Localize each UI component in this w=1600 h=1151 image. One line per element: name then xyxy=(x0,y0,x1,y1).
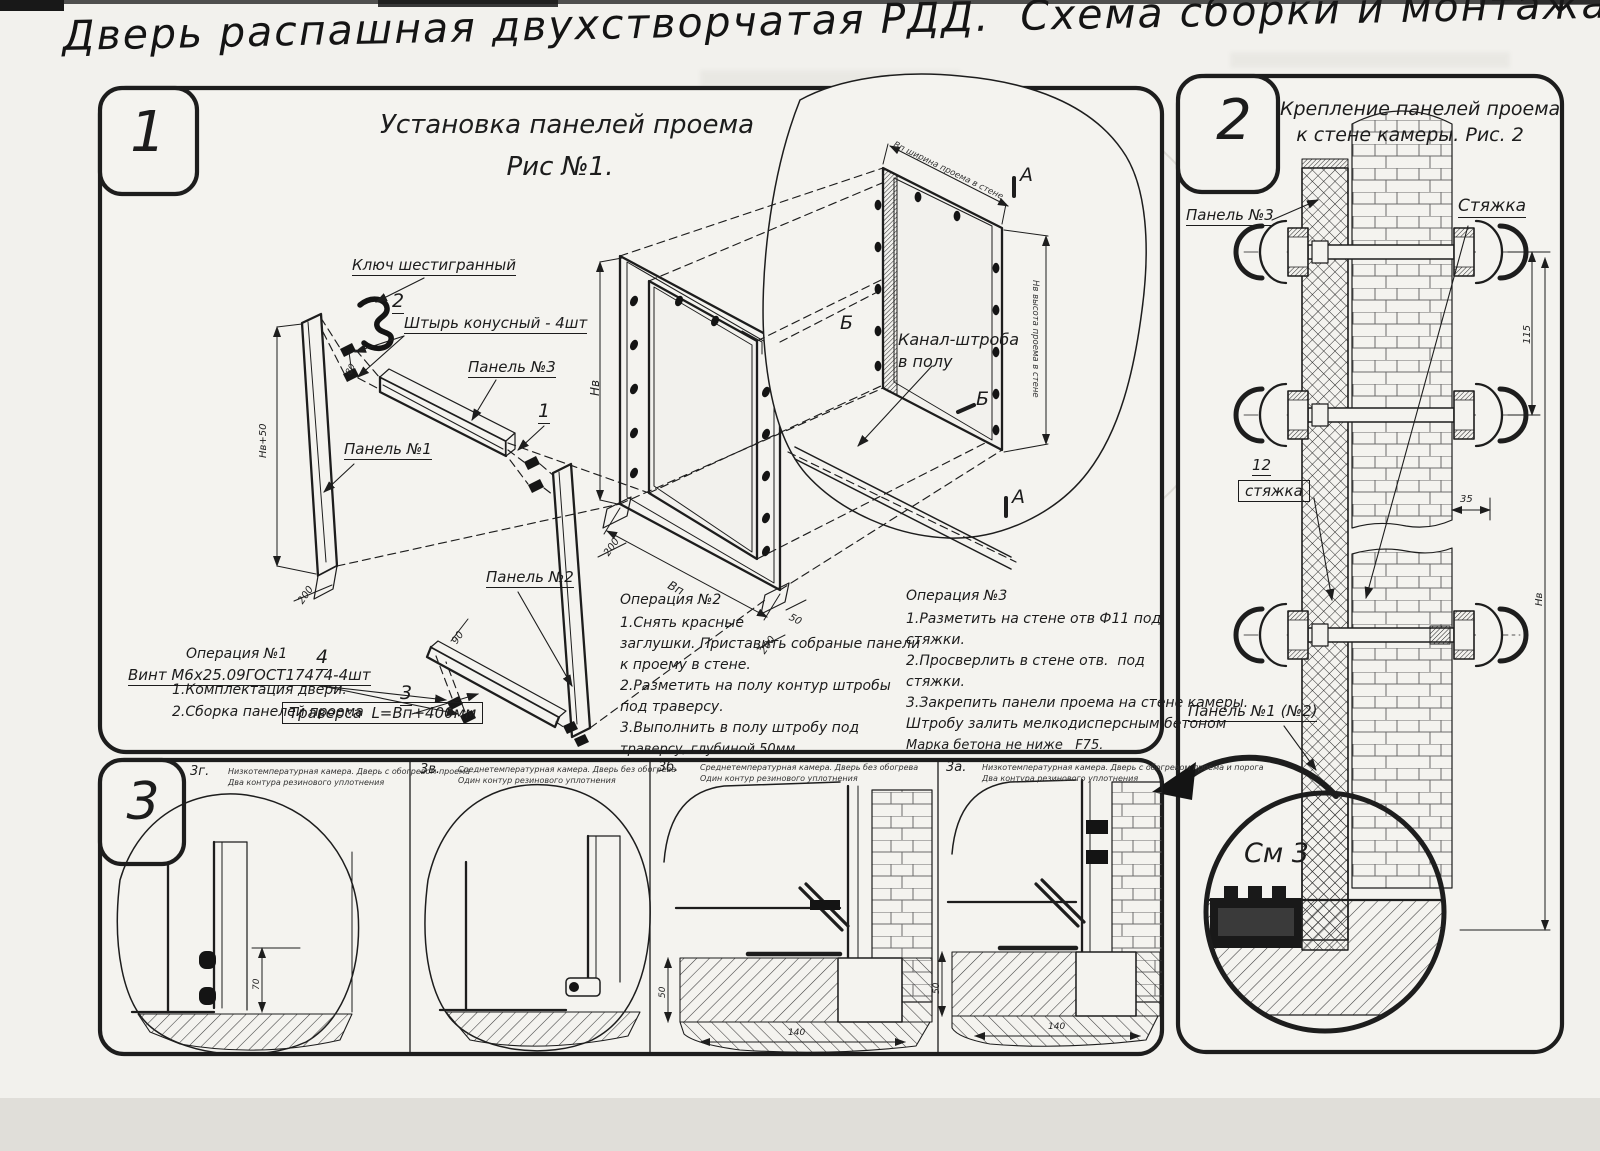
dim-50-3a: 50 xyxy=(932,983,942,994)
section-marker-b-bottom: Б xyxy=(976,388,989,410)
channel-label-line1: Канал-штроба xyxy=(898,330,1019,349)
dim-140-3b: 140 xyxy=(788,1028,805,1038)
subfig-3b-caption2: Один контур резинового уплотнения xyxy=(700,774,858,785)
section3-badge: 3 xyxy=(110,772,176,832)
operation3-title: Операция №3 xyxy=(906,586,1007,607)
dim-115: 115 xyxy=(1522,325,1533,344)
see-detail-3-label: См 3 xyxy=(1244,838,1309,869)
operation3-line3: 2.Просверлить в стене отв. под xyxy=(906,651,1145,672)
operation1-title: Операция №1 xyxy=(186,644,287,665)
section-marker-a-bottom: А xyxy=(1012,486,1025,508)
operation3-line6: Штробу залить мелкодисперсным бетоном xyxy=(906,714,1226,735)
operation2-line4: 2.Разметить на полу контур штробы xyxy=(620,676,891,697)
item-number-12: 12 xyxy=(1252,456,1271,476)
item-number-1: 1 xyxy=(538,400,550,424)
item-number-2: 2 xyxy=(392,290,404,314)
section-marker-a-top: А xyxy=(1020,164,1033,186)
subfig-3b-caption1: Среднетемпературная камера. Дверь без об… xyxy=(700,763,918,774)
subfig-3g-id: 3г. xyxy=(190,764,209,779)
dim-hv-frame: Нв xyxy=(588,380,602,396)
operation2-line1: 1.Снять красные xyxy=(620,613,744,634)
dim-50-3b: 50 xyxy=(658,987,668,998)
subfig-3a-caption1: Низкотемпературная камера. Дверь с обогр… xyxy=(982,763,1264,774)
section1-badge: 1 xyxy=(108,100,188,165)
panel2-label: Панель №2 xyxy=(486,568,574,588)
subfig-3v-caption1: Среднетемпературная камера. Дверь без об… xyxy=(458,765,676,776)
operation2-line7: траверсу, глубиной 50мм xyxy=(620,739,795,760)
dim-70-3g: 70 xyxy=(252,979,262,990)
panel12-label: Панель №1 (№2) xyxy=(1188,702,1317,722)
section1-title: Установка панелей проема xyxy=(380,110,740,140)
scan-edge-blob xyxy=(378,0,558,7)
operation3-line1: 1.Разметить на стене отв Ф11 под xyxy=(906,609,1161,630)
tie-boxed-label: стяжка xyxy=(1238,480,1310,502)
subfig-3v-id: 3в. xyxy=(420,762,440,777)
drawing-linework xyxy=(0,0,1600,1151)
panel3-label-s2: Панель №3 xyxy=(1186,206,1274,226)
subfig-3v-caption2: Один контур резинового уплотнения xyxy=(458,776,616,787)
section2-title-line1: Крепление панелей проема xyxy=(1280,98,1540,120)
section1-subtitle: Рис №1. xyxy=(440,152,680,182)
dim-hv50: Нв+50 xyxy=(258,423,269,458)
operation2-title: Операция №2 xyxy=(620,590,721,611)
scan-edge-corner xyxy=(0,0,64,11)
hex-key-label: Ключ шестигранный xyxy=(352,256,516,276)
operation3-line2: стяжки. xyxy=(906,630,965,651)
operation3-line7: Марка бетона не ниже F75. xyxy=(906,735,1103,756)
section2-title-line2: к стене камеры. Рис. 2 xyxy=(1280,124,1540,146)
dim-35: 35 xyxy=(1460,494,1473,505)
subfig-3g-caption2: Два контура резинового уплотнения xyxy=(228,778,384,789)
operation2-line3: к проему в стене. xyxy=(620,655,751,676)
subfig-3b-id: 3б. xyxy=(658,760,678,775)
subfig-3a-caption2: Два контура резинового уплотнения xyxy=(982,774,1138,785)
operation3-line4: стяжки. xyxy=(906,672,965,693)
operation2-line5: под траверсу. xyxy=(620,697,724,718)
operation1-line1: 1.Комплектация двери. xyxy=(172,680,347,701)
subfig-3a-id: 3а. xyxy=(946,760,966,775)
operation2-line2: заглушки. Приставить собраные панели xyxy=(620,634,920,655)
scan-edge-top xyxy=(0,0,1600,4)
conical-pin-label: Штырь конусный - 4шт xyxy=(404,314,587,334)
dim-140-3a: 140 xyxy=(1048,1022,1065,1032)
panel3-label: Панель №3 xyxy=(468,358,556,378)
tie-label: Стяжка xyxy=(1458,196,1526,218)
operation1-line2: 2.Сборка панелей проема xyxy=(172,702,364,723)
scan-edge-right xyxy=(1480,0,1600,5)
section-marker-b-mid: Б xyxy=(840,312,853,334)
dim-hv-s2: Нв xyxy=(1534,593,1545,606)
operation2-line6: 3.Выполнить в полу штробу под xyxy=(620,718,859,739)
dim-wall-height: Нв высота проема в стене xyxy=(1030,280,1040,398)
panel1-label: Панель №1 xyxy=(344,440,432,460)
channel-label-line2: в полу xyxy=(898,352,952,371)
section2-badge: 2 xyxy=(1194,88,1274,153)
